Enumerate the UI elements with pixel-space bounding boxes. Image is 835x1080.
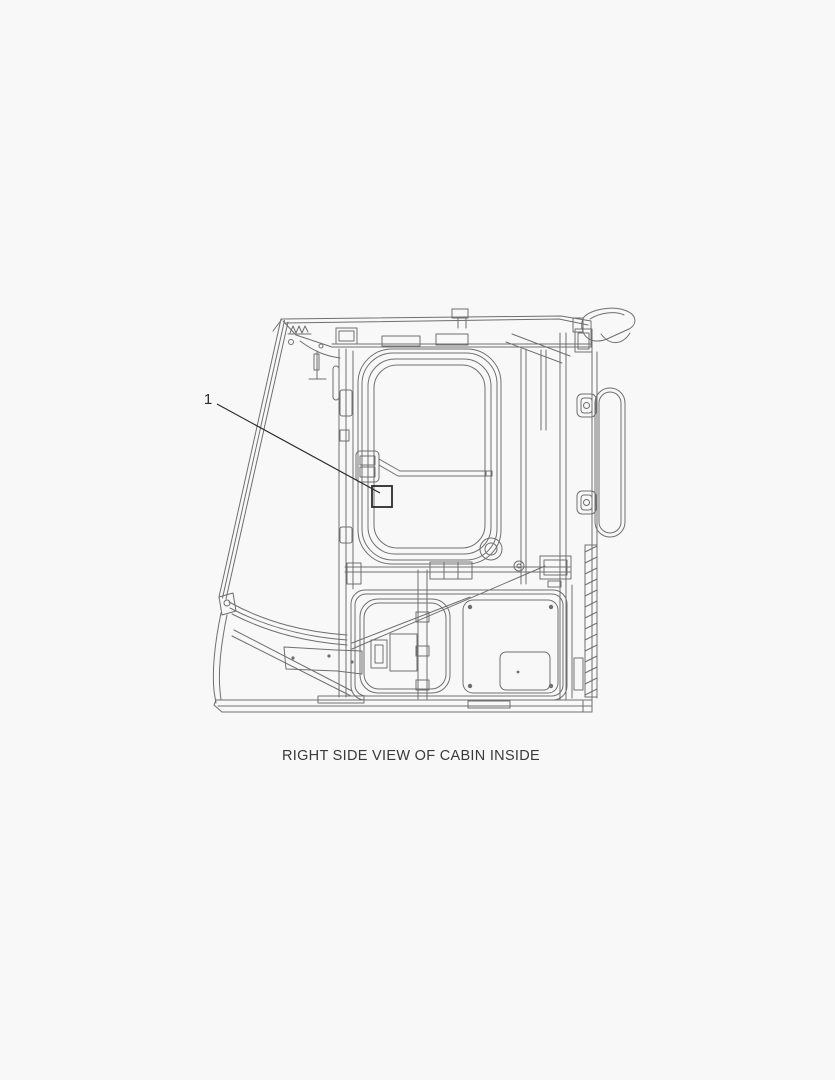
diagram-caption: RIGHT SIDE VIEW OF CABIN INSIDE xyxy=(282,748,540,764)
page: 1 RIGHT SIDE VIEW OF CABIN INSIDE xyxy=(0,0,835,1080)
page-background xyxy=(0,0,835,1080)
callout-1-label[interactable]: 1 xyxy=(204,391,212,408)
